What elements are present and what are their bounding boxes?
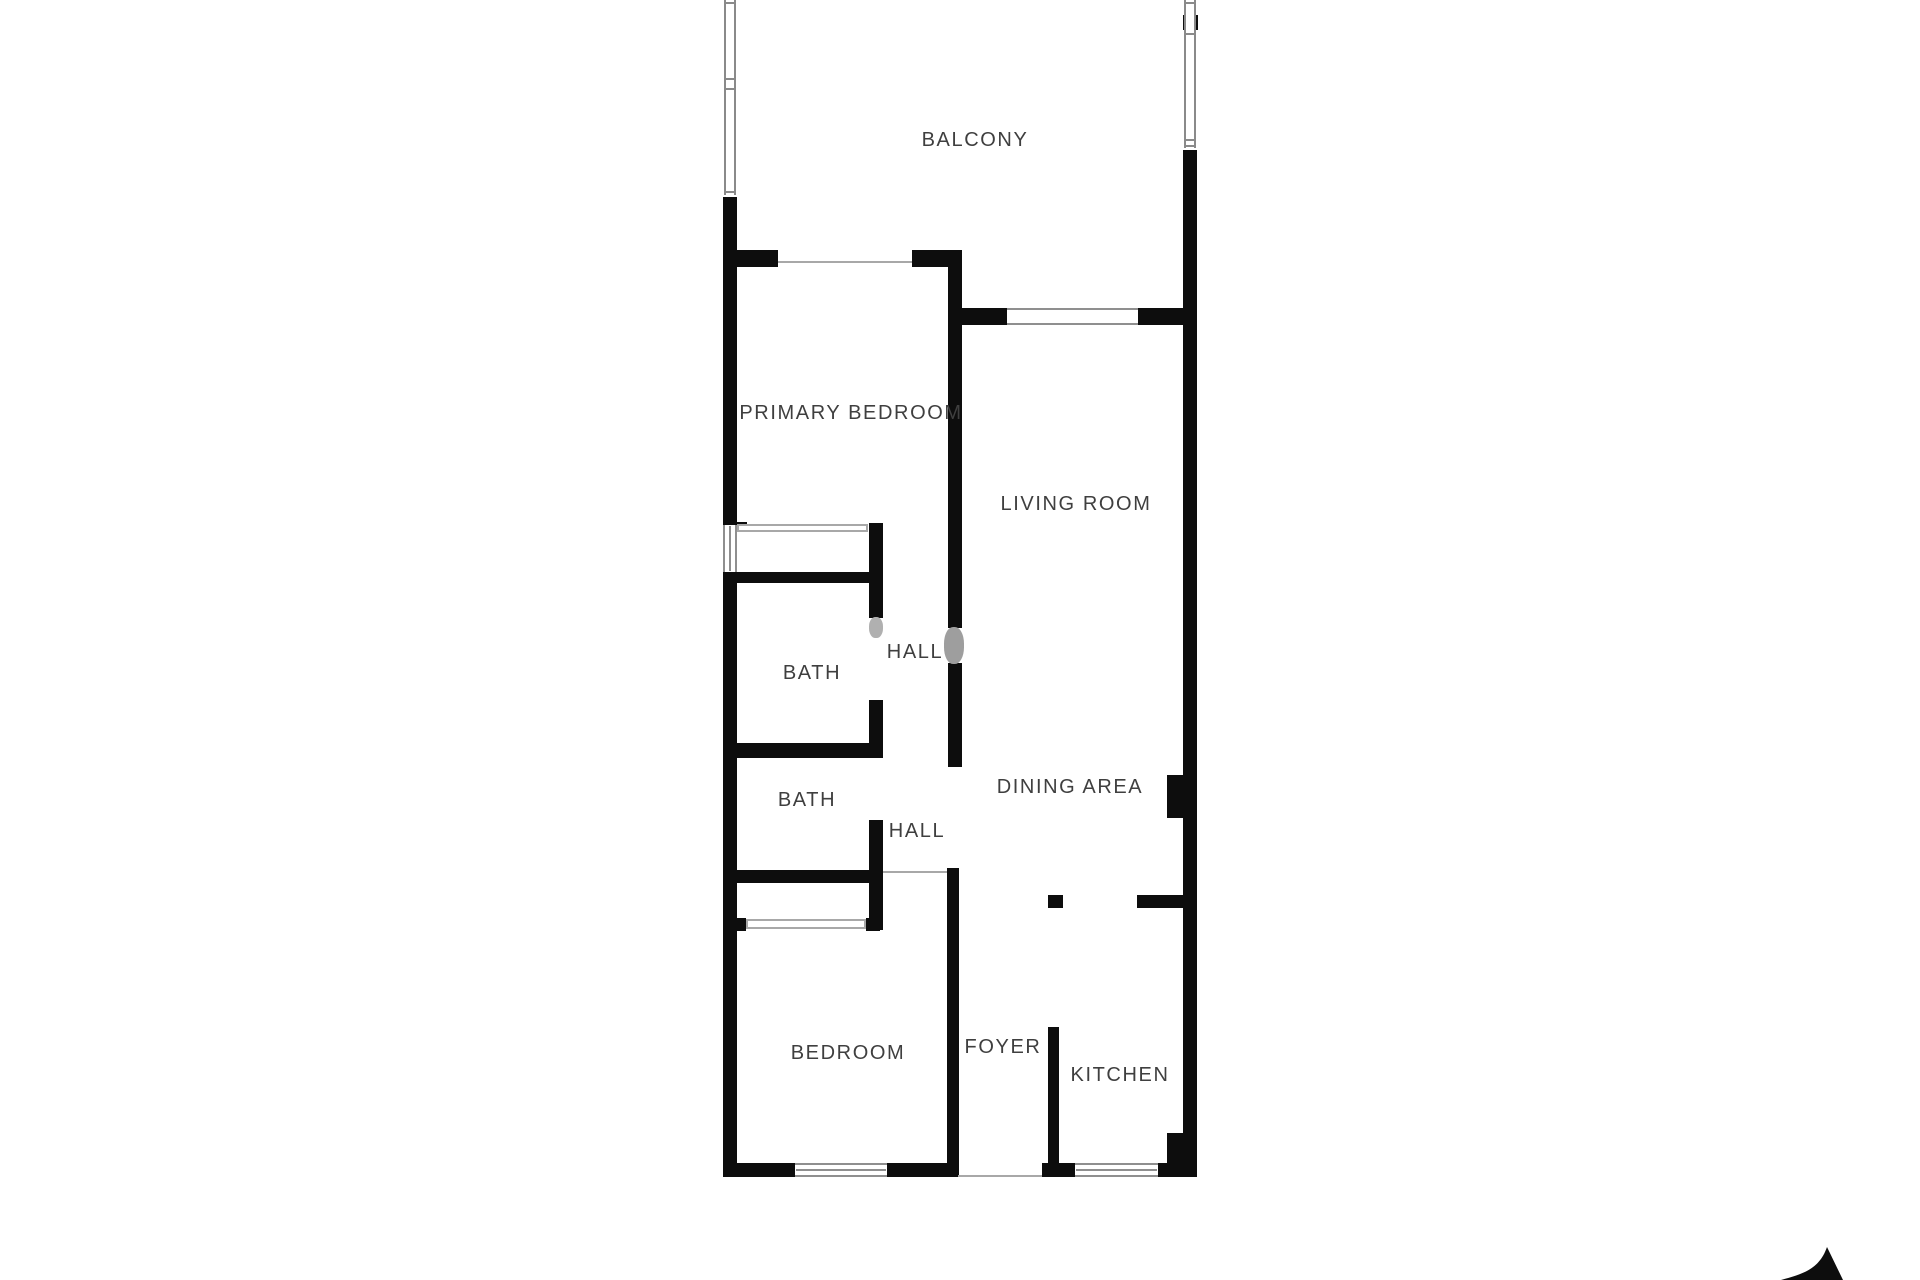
hall-foyer-threshold: [883, 871, 947, 873]
balcony-railing-left: [724, 0, 736, 195]
left-wall-window-glass-line: [729, 526, 731, 571]
room-label-balcony: BALCONY: [922, 130, 1029, 150]
watermark-smudge-1: [944, 627, 964, 664]
wall-kitchen-bottom-wall-right: [1158, 1163, 1197, 1177]
room-label-foyer: FOYER: [965, 1037, 1042, 1057]
wall-right-wall: [1183, 150, 1197, 1177]
north-arrow-icon: [1778, 1244, 1848, 1280]
balcony-railing-right-tick-0: [1184, 2, 1196, 4]
balcony-railing-right: [1184, 0, 1196, 148]
living-room-window: [1007, 308, 1138, 325]
balcony-railing-left-tick-2: [724, 88, 736, 90]
wall-kitchen-entry-stub: [1137, 895, 1183, 908]
wall-closet-stub-bottom-right: [866, 918, 880, 931]
room-label-bath-2: BATH: [778, 790, 836, 810]
wall-dining-column: [1167, 775, 1183, 818]
wall-bath-top-wall: [723, 572, 883, 583]
wall-closet-stub-bottom-left: [735, 918, 746, 931]
wall-bath-divider-wall: [723, 743, 883, 758]
room-label-hall-2: HALL: [889, 821, 945, 841]
balcony-railing-right-tick-1: [1184, 33, 1196, 35]
room-label-bath-1: BATH: [783, 663, 841, 683]
room-label-bedroom: BEDROOM: [791, 1043, 906, 1063]
wall-living-wall-lower: [948, 663, 962, 767]
primary-closet-front: [737, 524, 868, 532]
room-label-kitchen: KITCHEN: [1071, 1065, 1170, 1085]
bedroom-window: [795, 1163, 887, 1177]
room-label-hall-1: HALL: [887, 642, 943, 662]
wall-bath-hall-wall-upper: [869, 523, 883, 618]
wall-bedroom-bottom-wall-left: [723, 1163, 795, 1177]
kitchen-window-glass-line: [1076, 1169, 1157, 1171]
wall-living-room-top-wall-left: [948, 308, 1007, 325]
wall-bedroom-bottom-wall-right: [887, 1163, 958, 1177]
kitchen-window: [1075, 1163, 1158, 1177]
wall-hall-bottom-wall: [723, 870, 880, 883]
wall-foyer-wall: [947, 868, 959, 1177]
left-wall-window: [723, 525, 737, 572]
room-label-living-room: LIVING ROOM: [1001, 494, 1152, 514]
balcony-door-sill: [778, 261, 912, 263]
balcony-railing-right-tick-3: [1184, 145, 1196, 147]
balcony-railing-left-tick-1: [724, 78, 736, 80]
wall-left-wall-upper: [723, 197, 737, 525]
balcony-railing-left-tick-0: [724, 2, 736, 4]
bedroom-window-glass-line: [796, 1169, 886, 1171]
wall-kitchen-bottom-wall-left: [1042, 1163, 1075, 1177]
room-label-dining-area: DINING AREA: [997, 777, 1144, 797]
wall-kitchen-entry-column: [1048, 895, 1063, 908]
watermark-smudge-2: [869, 617, 883, 638]
room-label-primary-bedroom: PRIMARY BEDROOM: [739, 403, 962, 423]
bedroom-closet-front: [746, 919, 866, 929]
balcony-railing-right-tick-2: [1184, 139, 1196, 141]
entry-threshold: [958, 1175, 1042, 1177]
floorplan-canvas: BALCONYPRIMARY BEDROOMLIVING ROOMBATHHAL…: [0, 0, 1920, 1280]
balcony-railing-left-tick-3: [724, 191, 736, 193]
wall-kitchen-left-wall: [1048, 1027, 1059, 1163]
wall-primary-bedroom-top-wall-left: [723, 250, 778, 267]
wall-living-wall-upper: [948, 250, 962, 628]
wall-kitchen-corner-block: [1167, 1133, 1193, 1163]
